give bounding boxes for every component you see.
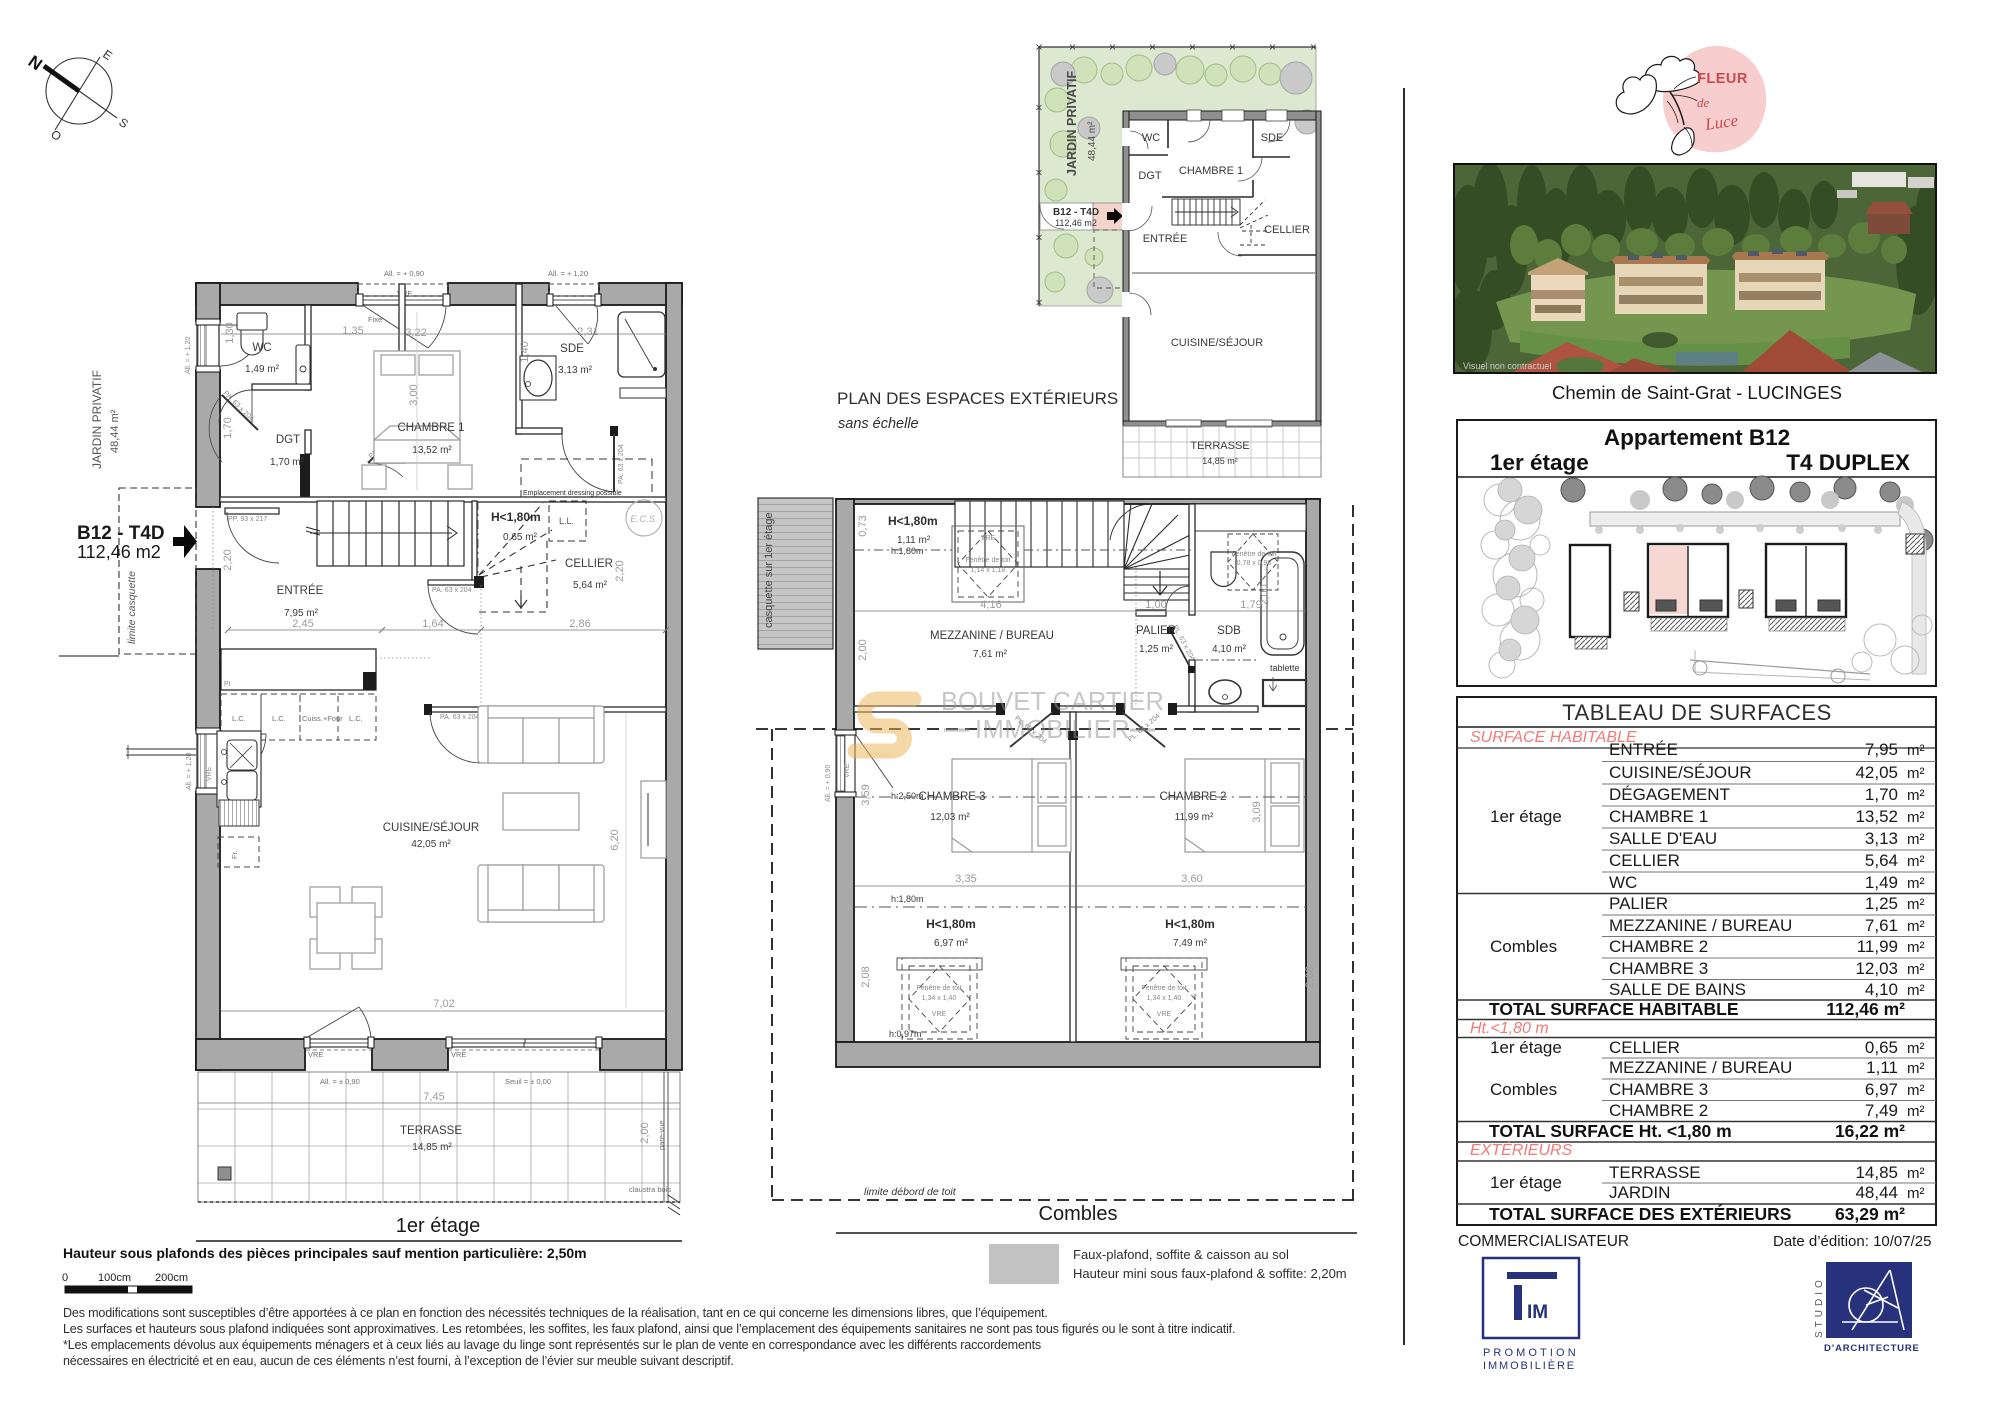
svg-text:4,16: 4,16: [980, 599, 1001, 611]
svg-text:1,25: 1,25: [1865, 894, 1898, 913]
svg-text:63,29 m²: 63,29 m²: [1835, 1204, 1905, 1224]
svg-text:7,61: 7,61: [1865, 916, 1898, 935]
svg-text:12,03 m²: 12,03 m²: [930, 812, 970, 823]
svg-text:6,97: 6,97: [1865, 1080, 1898, 1099]
svg-text:PALIER: PALIER: [1136, 625, 1176, 637]
svg-text:2,00: 2,00: [639, 1122, 651, 1143]
svg-text:m²: m²: [1907, 809, 1925, 826]
svg-text:3,00: 3,00: [408, 384, 420, 405]
svg-text:CHAMBRE 2: CHAMBRE 2: [1609, 937, 1708, 956]
svg-text:TERRASSE: TERRASSE: [1609, 1163, 1701, 1182]
svg-text:claustra bois: claustra bois: [629, 1185, 671, 1194]
svg-text:PA. 63 x 204: PA. 63 x 204: [618, 444, 625, 484]
svg-text:2,00: 2,00: [1259, 584, 1271, 605]
svg-text:CUISINE/SÉJOUR: CUISINE/SÉJOUR: [383, 821, 480, 834]
svg-text:PA. 63 x 204: PA. 63 x 204: [432, 587, 472, 594]
svg-text:1,64: 1,64: [422, 618, 443, 630]
svg-text:1,14 x 1,18: 1,14 x 1,18: [971, 567, 1006, 574]
svg-text:VRE: VRE: [981, 535, 996, 542]
svg-text:H<1,80m: H<1,80m: [926, 917, 976, 931]
svg-text:CUISINE/SÉJOUR: CUISINE/SÉJOUR: [1609, 763, 1752, 782]
svg-text:m²: m²: [1907, 939, 1925, 956]
svg-text:PI: PI: [224, 681, 231, 688]
svg-text:L.L.: L.L.: [559, 516, 574, 526]
svg-text:limite casquette: limite casquette: [126, 571, 138, 644]
svg-text:7,45: 7,45: [423, 1091, 444, 1103]
svg-text:1er étage: 1er étage: [1490, 450, 1589, 475]
svg-text:m²: m²: [1907, 1040, 1925, 1057]
svg-text:CHAMBRE 1: CHAMBRE 1: [1179, 165, 1243, 177]
svg-text:IMMOBILIER: IMMOBILIER: [975, 716, 1130, 744]
svg-text:Fenêtre de toit: Fenêtre de toit: [916, 985, 961, 992]
svg-text:WC: WC: [1142, 132, 1160, 144]
svg-text:112,46 m²: 112,46 m²: [1826, 999, 1905, 1019]
svg-text:1er étage: 1er étage: [1490, 1173, 1562, 1192]
svg-text:7,61 m²: 7,61 m²: [973, 649, 1008, 660]
svg-text:2,86: 2,86: [569, 618, 590, 630]
svg-text:Appartement B12: Appartement B12: [1604, 425, 1790, 450]
svg-text:13,52 m²: 13,52 m²: [412, 445, 452, 456]
svg-text:Les surfaces et hauteurs sous: Les surfaces et hauteurs sous plafond in…: [63, 1322, 1235, 1336]
svg-text:3,13: 3,13: [1865, 829, 1898, 848]
svg-text:0,65 m²: 0,65 m²: [503, 532, 538, 543]
svg-text:7,02: 7,02: [433, 998, 454, 1010]
svg-text:4,10: 4,10: [1865, 980, 1898, 999]
svg-text:CELLIER: CELLIER: [1264, 224, 1310, 236]
svg-text:1,40: 1,40: [519, 341, 531, 362]
svg-text:CHAMBRE 2: CHAMBRE 2: [1609, 1101, 1708, 1120]
svg-text:SDB: SDB: [1217, 625, 1241, 637]
svg-text:limite débord de toit: limite débord de toit: [864, 1186, 957, 1198]
svg-text:13,52: 13,52: [1855, 807, 1898, 826]
svg-text:VRE: VRE: [932, 1011, 947, 1018]
svg-text:5,64 m²: 5,64 m²: [573, 580, 608, 591]
svg-text:48,44 m²: 48,44 m²: [1087, 121, 1098, 161]
svg-text:H<1,80m: H<1,80m: [888, 514, 938, 528]
svg-text:m²: m²: [1907, 831, 1925, 848]
svg-text:TERRASSE: TERRASSE: [400, 1125, 462, 1137]
svg-text:48,44: 48,44: [1855, 1183, 1898, 1202]
svg-text:m²: m²: [1907, 896, 1925, 913]
svg-text:m²: m²: [1907, 765, 1925, 782]
svg-text:ENTRÉE: ENTRÉE: [1143, 232, 1188, 245]
svg-text:3,59: 3,59: [860, 784, 872, 805]
svg-text:CHAMBRE 3: CHAMBRE 3: [918, 791, 985, 803]
svg-text:1,49: 1,49: [1865, 873, 1898, 892]
svg-text:CHAMBRE 3: CHAMBRE 3: [1609, 959, 1708, 978]
svg-text:14,85 m²: 14,85 m²: [412, 1142, 452, 1153]
svg-text:DÉGAGEMENT: DÉGAGEMENT: [1609, 785, 1730, 804]
svg-text:VRE: VRE: [308, 1050, 323, 1059]
svg-text:CHAMBRE 3: CHAMBRE 3: [1609, 1080, 1708, 1099]
svg-text:1,70 m²: 1,70 m²: [270, 457, 305, 468]
svg-text:MEZZANINE / BUREAU: MEZZANINE / BUREAU: [1609, 916, 1792, 935]
svg-text:tablette: tablette: [1270, 663, 1300, 673]
svg-text:2,00: 2,00: [857, 639, 869, 660]
svg-text:1,49 m²: 1,49 m²: [245, 364, 280, 375]
svg-text:Combles: Combles: [1490, 1080, 1557, 1099]
svg-text:VRE: VRE: [1157, 1011, 1172, 1018]
svg-text:PROMOTION: PROMOTION: [1483, 1347, 1579, 1359]
svg-text:H<1,80m: H<1,80m: [491, 510, 541, 524]
svg-text:CELLIER: CELLIER: [1609, 851, 1680, 870]
svg-text:D’ARCHITECTURE: D’ARCHITECTURE: [1824, 1343, 1920, 1354]
svg-text:0,65: 0,65: [1865, 1038, 1898, 1057]
svg-text:m²: m²: [1907, 1165, 1925, 1182]
svg-text:MEZZANINE / BUREAU: MEZZANINE / BUREAU: [1609, 1058, 1792, 1077]
svg-text:casquette sur 1er étage: casquette sur 1er étage: [763, 512, 775, 628]
svg-text:Emplacement dressing possible: Emplacement dressing possible: [523, 490, 622, 497]
svg-text:T4 DUPLEX: T4 DUPLEX: [1786, 450, 1910, 475]
svg-text:7,95: 7,95: [1865, 740, 1898, 759]
svg-text:7,49: 7,49: [1865, 1101, 1898, 1120]
svg-text:Fr.: Fr.: [230, 850, 239, 859]
svg-text:sans échelle: sans échelle: [838, 416, 919, 432]
svg-text:3,35: 3,35: [955, 873, 976, 885]
svg-text:m²: m²: [1907, 982, 1925, 999]
svg-text:m²: m²: [1907, 918, 1925, 935]
svg-text:11,99 m²: 11,99 m²: [1175, 812, 1214, 823]
svg-text:Chemin de Saint-Grat - LUCINGE: Chemin de Saint-Grat - LUCINGES: [1552, 382, 1842, 403]
svg-text:200cm: 200cm: [155, 1272, 188, 1284]
svg-text:MEZZANINE / BUREAU: MEZZANINE / BUREAU: [930, 630, 1054, 642]
svg-text:3,60: 3,60: [1181, 873, 1202, 885]
svg-text:All. = ± 0,90: All. = ± 0,90: [320, 1077, 360, 1086]
svg-text:m²: m²: [1907, 1185, 1925, 1202]
svg-text:m²: m²: [1907, 1060, 1925, 1077]
svg-text:0: 0: [62, 1272, 68, 1284]
svg-text:Faux-plafond, soffite & caisso: Faux-plafond, soffite & caisson au sol: [1073, 1247, 1289, 1262]
svg-text:0,78 x 0,98: 0,78 x 0,98: [1237, 560, 1272, 567]
svg-text:CELLIER: CELLIER: [565, 558, 613, 570]
svg-text:1er étage: 1er étage: [396, 1215, 481, 1237]
svg-text:WC: WC: [1609, 873, 1637, 892]
svg-text:SDE: SDE: [1261, 132, 1284, 144]
svg-text:All. = + 0,90: All. = + 0,90: [384, 269, 424, 278]
svg-text:0,73: 0,73: [857, 515, 869, 536]
svg-text:h:1,80m: h:1,80m: [891, 546, 924, 556]
svg-text:Fenêtre de toit: Fenêtre de toit: [965, 557, 1010, 564]
svg-text:3,13 m²: 3,13 m²: [558, 365, 593, 376]
svg-text:STUDIO: STUDIO: [1814, 1276, 1825, 1338]
svg-text:JARDIN PRIVATIF: JARDIN PRIVATIF: [1065, 71, 1079, 176]
svg-text:EXTÉRIEURS: EXTÉRIEURS: [1470, 1140, 1573, 1159]
svg-text:1,34 x 1,40: 1,34 x 1,40: [1147, 995, 1182, 1002]
svg-text:SDE: SDE: [560, 343, 584, 355]
svg-text:SALLE D'EAU: SALLE D'EAU: [1609, 829, 1717, 848]
svg-text:JARDIN: JARDIN: [1609, 1183, 1670, 1202]
svg-text:H<1,80m: H<1,80m: [1165, 917, 1215, 931]
svg-text:7,49 m²: 7,49 m²: [1173, 938, 1208, 949]
svg-text:TOTAL SURFACE Ht. <1,80 m: TOTAL SURFACE Ht. <1,80 m: [1489, 1121, 1732, 1141]
svg-text:m²: m²: [1907, 875, 1925, 892]
svg-text:14,85 m²: 14,85 m²: [1202, 456, 1238, 466]
svg-text:6,20: 6,20: [609, 829, 621, 850]
svg-text:1er étage: 1er étage: [1490, 807, 1562, 826]
svg-text:2,45: 2,45: [292, 618, 313, 630]
svg-text:*Les emplacements dévolus aux: *Les emplacements dévolus aux équipement…: [63, 1338, 1041, 1352]
svg-text:PP. 93 x 217: PP. 93 x 217: [228, 516, 267, 523]
svg-text:42,05 m²: 42,05 m²: [411, 839, 451, 850]
svg-text:TERRASSE: TERRASSE: [1190, 440, 1249, 452]
svg-text:Combles: Combles: [1039, 1203, 1118, 1225]
svg-text:m²: m²: [1907, 742, 1925, 759]
svg-text:112,46 m2: 112,46 m2: [1055, 218, 1097, 228]
svg-text:All. = + 1,20: All. = + 1,20: [186, 753, 193, 790]
svg-text:COMMERCIALISATEUR: COMMERCIALISATEUR: [1458, 1233, 1629, 1250]
svg-text:DGT: DGT: [276, 434, 300, 446]
svg-text:3,09: 3,09: [1251, 801, 1263, 822]
svg-text:m²: m²: [1907, 961, 1925, 978]
svg-text:JARDIN PRIVATIF: JARDIN PRIVATIF: [90, 370, 104, 469]
svg-text:42,05: 42,05: [1855, 763, 1898, 782]
svg-text:PLAN DES ESPACES EXTÉRIEURS: PLAN DES ESPACES EXTÉRIEURS: [837, 389, 1118, 408]
svg-text:SALLE DE BAINS: SALLE DE BAINS: [1609, 980, 1746, 999]
svg-text:m²: m²: [1907, 853, 1925, 870]
svg-text:6,97 m²: 6,97 m²: [934, 938, 969, 949]
svg-text:11,99: 11,99: [1857, 937, 1898, 956]
svg-text:16,22 m²: 16,22 m²: [1835, 1121, 1905, 1141]
svg-text:nécessaires en électricité et: nécessaires en électricité et en eau, au…: [63, 1354, 734, 1368]
svg-text:Ht.<1,80 m: Ht.<1,80 m: [1470, 1020, 1549, 1037]
svg-text:ENTRÉE: ENTRÉE: [1609, 740, 1678, 759]
svg-text:Des modifications sont suscept: Des modifications sont susceptibles d’êt…: [63, 1306, 1048, 1320]
svg-text:Seuil = ± 0,00: Seuil = ± 0,00: [505, 1077, 551, 1086]
svg-text:2,31: 2,31: [577, 326, 598, 338]
svg-text:1,30: 1,30: [224, 322, 236, 343]
svg-text:2,08: 2,08: [860, 966, 872, 987]
svg-text:IM: IM: [1527, 1302, 1548, 1323]
svg-text:1,35: 1,35: [342, 325, 363, 337]
svg-text:100cm: 100cm: [98, 1272, 131, 1284]
svg-text:E.C.S.: E.C.S.: [630, 514, 657, 525]
svg-text:1,00: 1,00: [1145, 599, 1166, 611]
svg-text:14,85: 14,85: [1855, 1163, 1898, 1182]
svg-text:VRE: VRE: [844, 763, 851, 778]
svg-text:Fenêtre de toit: Fenêtre de toit: [1231, 551, 1276, 558]
svg-text:CHAMBRE 1: CHAMBRE 1: [1609, 807, 1708, 826]
svg-text:L.C.: L.C.: [349, 714, 363, 723]
svg-text:12,03: 12,03: [1855, 959, 1898, 978]
svg-text:1,11 m²: 1,11 m²: [897, 535, 931, 546]
svg-text:All. = + 1,20: All. = + 1,20: [185, 337, 192, 374]
svg-text:PALIER: PALIER: [1609, 894, 1668, 913]
svg-text:BOUVET CARTIER: BOUVET CARTIER: [941, 688, 1164, 716]
svg-text:1,70: 1,70: [1865, 785, 1898, 804]
svg-text:5,64: 5,64: [1865, 851, 1898, 870]
svg-text:pare-vue: pare-vue: [657, 1120, 666, 1150]
svg-text:h:1,80m: h:1,80m: [891, 894, 924, 904]
svg-text:TOTAL SURFACE DES EXTÉRIEURS: TOTAL SURFACE DES EXTÉRIEURS: [1489, 1203, 1791, 1224]
svg-text:Hauteur sous plafonds des pièc: Hauteur sous plafonds des pièces princip…: [63, 1245, 587, 1261]
svg-text:CELLIER: CELLIER: [1609, 1038, 1680, 1057]
svg-text:All. = + 1,20: All. = + 1,20: [548, 269, 588, 278]
svg-text:Visuel non contractuel: Visuel non contractuel: [1463, 361, 1551, 371]
svg-text:CHAMBRE 1: CHAMBRE 1: [397, 422, 464, 434]
svg-text:CUISINE/SÉJOUR: CUISINE/SÉJOUR: [1171, 336, 1263, 349]
svg-text:48,44 m²: 48,44 m²: [109, 409, 121, 453]
svg-text:1,70: 1,70: [222, 417, 234, 438]
svg-text:de: de: [1697, 95, 1710, 110]
svg-text:4,10 m²: 4,10 m²: [1212, 644, 1247, 655]
svg-text:2,08: 2,08: [1304, 966, 1316, 987]
svg-text:VRE: VRE: [451, 1050, 466, 1059]
svg-text:1,34 x 1,40: 1,34 x 1,40: [922, 995, 957, 1002]
svg-text:Fenêtre de toit: Fenêtre de toit: [1141, 985, 1186, 992]
svg-text:2,20: 2,20: [222, 549, 234, 570]
svg-text:Combles: Combles: [1490, 937, 1557, 956]
svg-text:WC: WC: [252, 342, 271, 354]
svg-text:IMMOBILIÈRE: IMMOBILIÈRE: [1483, 1359, 1576, 1372]
svg-text:1,11: 1,11: [1866, 1058, 1898, 1077]
svg-text:TOTAL SURFACE HABITABLE: TOTAL SURFACE HABITABLE: [1489, 999, 1739, 1019]
svg-text:B12 - T4D: B12 - T4D: [1053, 207, 1099, 218]
svg-text:TABLEAU DE SURFACES: TABLEAU DE SURFACES: [1562, 700, 1832, 725]
svg-text:m²: m²: [1907, 787, 1925, 804]
svg-text:h:0,97m: h:0,97m: [889, 1029, 922, 1039]
svg-text:m²: m²: [1907, 1103, 1925, 1120]
svg-text:1er étage: 1er étage: [1490, 1038, 1562, 1057]
svg-text:Cuiss.+Four: Cuiss.+Four: [302, 714, 343, 723]
svg-text:2,20: 2,20: [614, 560, 626, 581]
svg-text:All. = + 0,90: All. = + 0,90: [825, 765, 832, 802]
svg-text:1,25 m²: 1,25 m²: [1139, 644, 1174, 655]
svg-text:m²: m²: [1907, 1082, 1925, 1099]
svg-text:PA. 63 x 204: PA. 63 x 204: [440, 714, 480, 721]
svg-text:CHAMBRE 2: CHAMBRE 2: [1159, 791, 1226, 803]
svg-text:B12 - T4D: B12 - T4D: [77, 523, 165, 544]
svg-text:Fixe: Fixe: [368, 315, 382, 324]
svg-text:L.C.: L.C.: [232, 714, 246, 723]
svg-text:3,22: 3,22: [405, 327, 426, 339]
svg-text:DGT: DGT: [1138, 170, 1162, 182]
svg-text:VRE: VRE: [206, 766, 213, 781]
svg-text:FLEUR: FLEUR: [1697, 71, 1748, 87]
svg-text:Date d’édition: 10/07/25: Date d’édition: 10/07/25: [1773, 1233, 1931, 1250]
svg-text:ENTRÉE: ENTRÉE: [277, 584, 324, 597]
svg-text:Hauteur mini sous faux-plafond: Hauteur mini sous faux-plafond & soffite…: [1073, 1266, 1347, 1281]
svg-text:L.C.: L.C.: [272, 714, 286, 723]
